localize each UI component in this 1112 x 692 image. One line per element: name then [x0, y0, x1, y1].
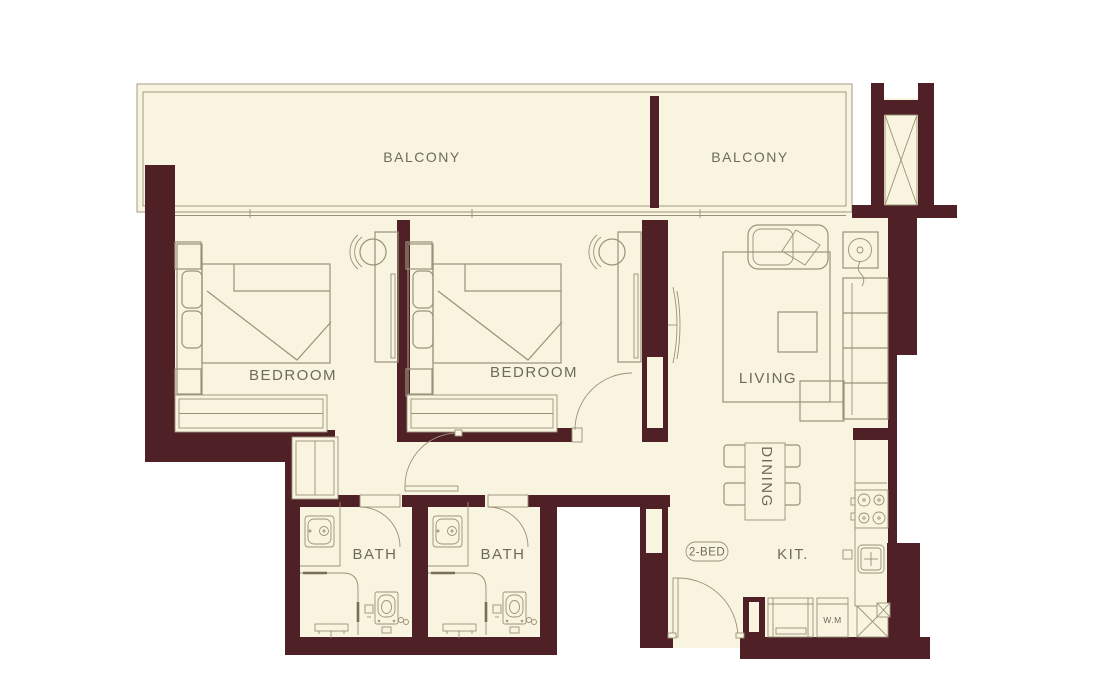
wall-shaft-south: [852, 205, 957, 218]
floor-plan-canvas: W.M: [0, 0, 1112, 692]
wall-bath2-east: [540, 502, 557, 655]
wall-west: [145, 165, 175, 462]
dining-label: DINING: [758, 446, 775, 508]
wall-shaft-west: [871, 83, 884, 207]
wardrobe-symbol: [407, 395, 557, 432]
wall-bath1-west: [285, 495, 300, 655]
wall-baths-south: [285, 637, 557, 655]
bedroom-left-label: BEDROOM: [249, 367, 337, 384]
wall-south-east: [740, 637, 930, 659]
wall-shaft-top: [884, 100, 918, 115]
balcony-left-label: BALCONY: [383, 149, 460, 165]
wall-bath-divider: [412, 502, 428, 655]
kitchen-label: KIT.: [777, 546, 809, 563]
bath-left-label: BATH: [353, 546, 398, 563]
wall-living-kitchen: [853, 428, 888, 440]
wall-kitchen-east: [888, 355, 897, 543]
balcony-right-label: BALCONY: [711, 149, 788, 165]
shaft-box-symbol: [857, 603, 890, 637]
wardrobe-symbol: [175, 395, 327, 432]
wall-shaft-east: [918, 83, 934, 207]
bath-right-label: BATH: [481, 546, 526, 563]
linen-closet-symbol: [292, 437, 338, 499]
wall-niche: [646, 509, 662, 553]
washing-machine-label: W.M: [823, 615, 842, 625]
unit-type-badge: 2-BED: [686, 542, 728, 561]
bedroom-right-label: BEDROOM: [490, 364, 578, 381]
balcony-floor: [137, 84, 852, 212]
wall-kitchen-corner: [887, 543, 920, 637]
wall-bedroom-living: [642, 220, 668, 357]
floor-plan: W.M: [0, 0, 1112, 692]
wall-living-east: [888, 218, 917, 355]
living-label: LIVING: [739, 370, 797, 387]
wall-balcony-divider: [650, 96, 659, 208]
unit-type-badge-label: 2-BED: [689, 547, 725, 559]
